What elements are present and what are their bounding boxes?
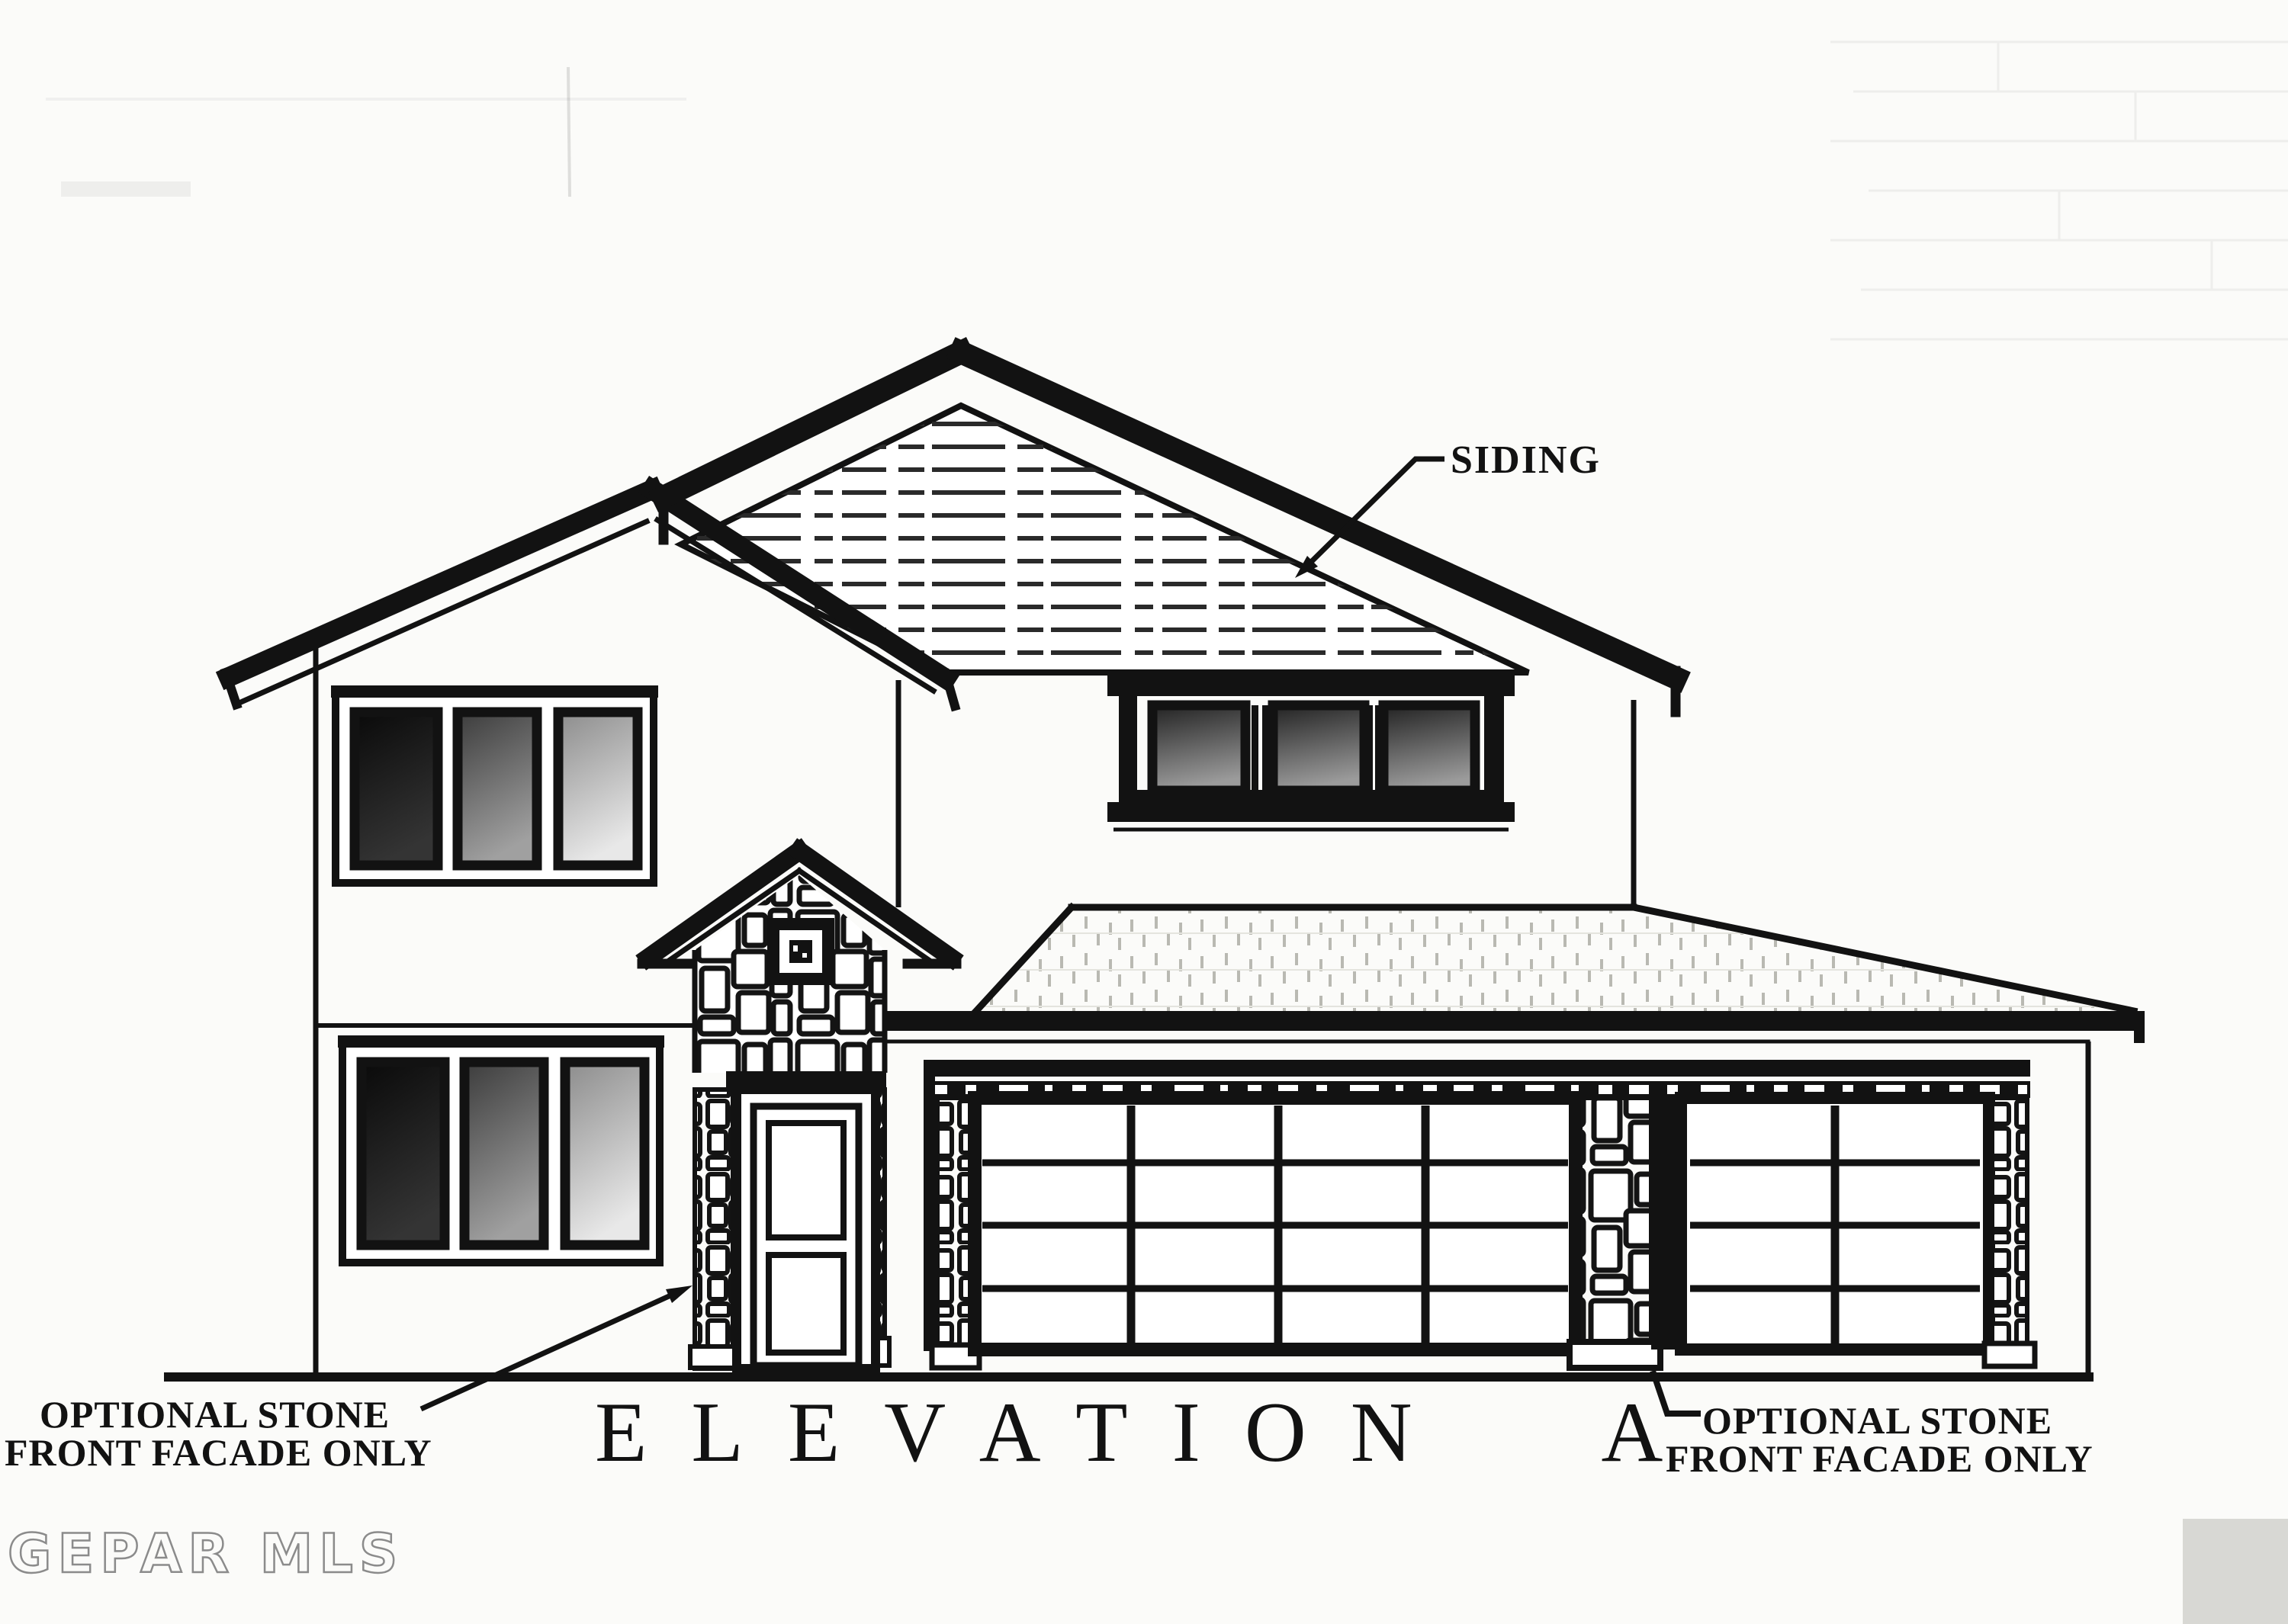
stone-strip-right	[1992, 1098, 2027, 1346]
drawing-title: ELEVATION A	[595, 1385, 1707, 1480]
window-pane-dark	[362, 1062, 445, 1245]
scan-smudge	[61, 181, 191, 197]
scan-line	[568, 67, 570, 197]
window-pane-light	[558, 712, 638, 865]
blueprint-canvas: SIDING OPTIONAL STONE FRONT FACADE ONLY …	[0, 0, 2288, 1624]
lower-window	[338, 1035, 664, 1263]
left-note-line1: OPTIONAL STONE	[40, 1393, 390, 1436]
siding-label: SIDING	[1451, 438, 1601, 482]
window-pane-dark	[355, 712, 438, 865]
door-panel-lower	[769, 1255, 844, 1353]
clerestory-window-band	[1107, 673, 1515, 830]
door-panel-upper	[769, 1123, 844, 1237]
right-note-line2: FRONT FACADE ONLY	[1666, 1437, 2094, 1480]
garage-edge-left	[924, 1060, 935, 1351]
entry-tower	[642, 851, 956, 1369]
garage-top-trim	[924, 1060, 2030, 1077]
window-pane-light	[565, 1062, 644, 1245]
eave-fascia	[886, 1011, 2143, 1031]
tower-stone-strip-left	[695, 1090, 733, 1369]
garage-front	[924, 1041, 2088, 1372]
left-note-line2: FRONT FACADE ONLY	[5, 1431, 432, 1474]
mls-watermark: GEPAR MLS	[8, 1523, 403, 1585]
fascia-end-cap	[2134, 1011, 2145, 1043]
band-window-3	[1383, 705, 1475, 791]
stone-pillar	[1579, 1098, 1651, 1345]
upper-window	[331, 685, 658, 883]
stone-pillar-base	[1570, 1342, 1660, 1368]
window-pane-mid	[458, 712, 537, 865]
stone-base	[1984, 1343, 2035, 1366]
band-window-1	[1152, 705, 1245, 791]
scan-gray-block	[2183, 1519, 2288, 1624]
ghost-grid	[1830, 42, 2288, 339]
left-note-arrowhead	[666, 1285, 693, 1303]
window-pane-mid	[464, 1062, 544, 1245]
right-note-line1: OPTIONAL STONE	[1702, 1399, 2052, 1442]
gable-vent	[767, 918, 834, 985]
garage-roof	[886, 907, 2145, 1043]
double-garage-door	[975, 1098, 1576, 1350]
shingle-texture	[976, 909, 2134, 1011]
entry-door	[737, 1090, 876, 1369]
elevation-drawing-svg: SIDING OPTIONAL STONE FRONT FACADE ONLY …	[0, 0, 2288, 1624]
band-window-2	[1273, 705, 1364, 791]
single-garage-door	[1651, 1098, 1989, 1350]
stone-base	[690, 1346, 736, 1368]
